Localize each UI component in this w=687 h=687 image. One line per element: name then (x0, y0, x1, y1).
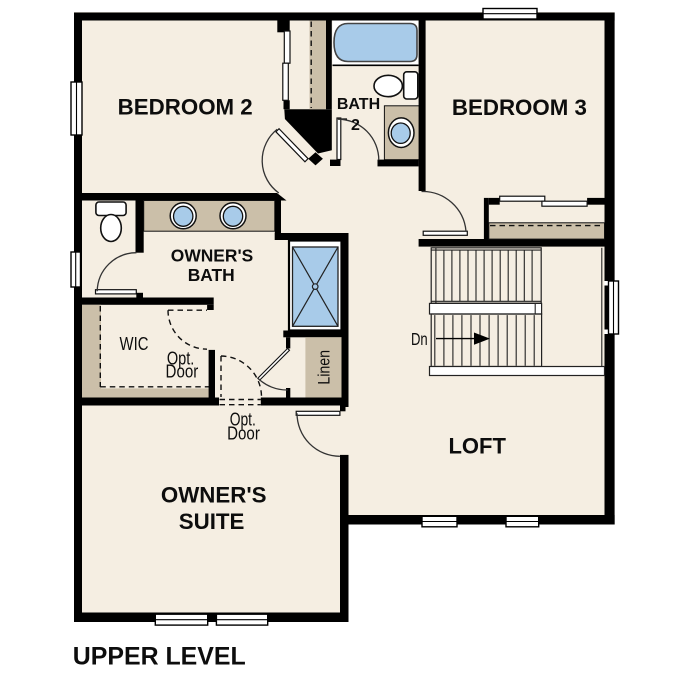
svg-text:BATH: BATH (188, 265, 235, 285)
svg-text:OWNER'S: OWNER'S (171, 246, 253, 266)
svg-text:Door: Door (227, 424, 260, 444)
svg-text:WIC: WIC (120, 334, 149, 354)
svg-text:Door: Door (166, 361, 199, 381)
svg-text:UPPER LEVEL: UPPER LEVEL (73, 642, 246, 670)
svg-text:BEDROOM 2: BEDROOM 2 (118, 95, 253, 120)
svg-text:BEDROOM 3: BEDROOM 3 (452, 95, 587, 120)
svg-text:OWNER'S: OWNER'S (161, 483, 267, 508)
svg-text:SUITE: SUITE (179, 509, 245, 534)
svg-text:Dn: Dn (411, 329, 428, 349)
svg-text:BATH: BATH (337, 96, 380, 113)
svg-text:Linen: Linen (314, 350, 333, 385)
svg-text:LOFT: LOFT (448, 434, 506, 459)
svg-text:2: 2 (351, 117, 360, 134)
